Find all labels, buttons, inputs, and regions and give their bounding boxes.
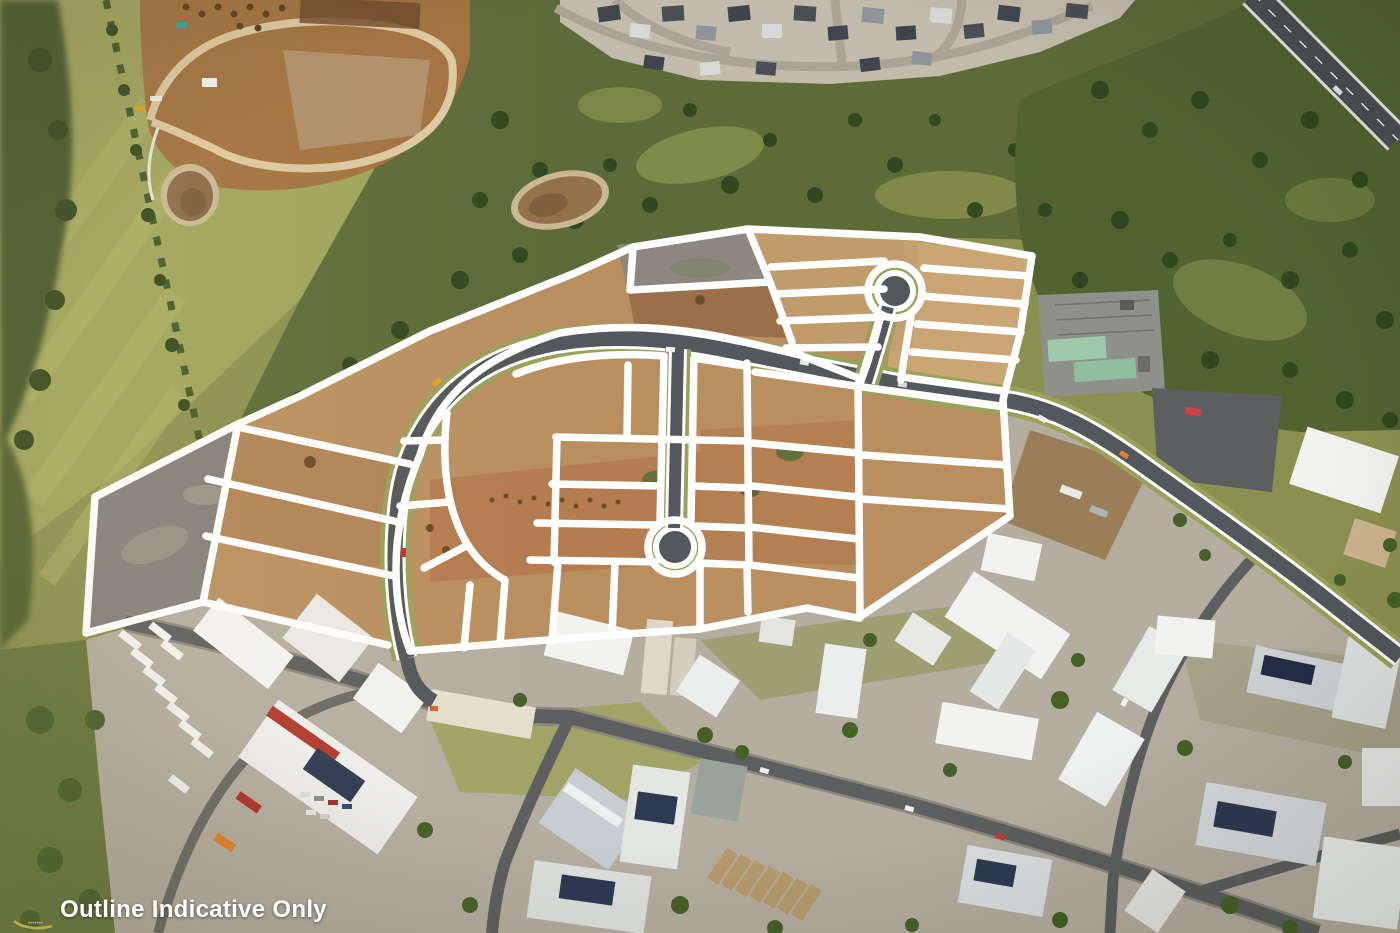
vignette <box>0 0 1400 933</box>
aerial-photo-stage: ••••••• Outline Indicative Only <box>0 0 1400 933</box>
watermark-text: ••••••• <box>28 921 43 927</box>
disclaimer-text: Outline Indicative Only <box>60 896 327 923</box>
aerial-photo: ••••••• Outline Indicative Only <box>0 0 1400 933</box>
